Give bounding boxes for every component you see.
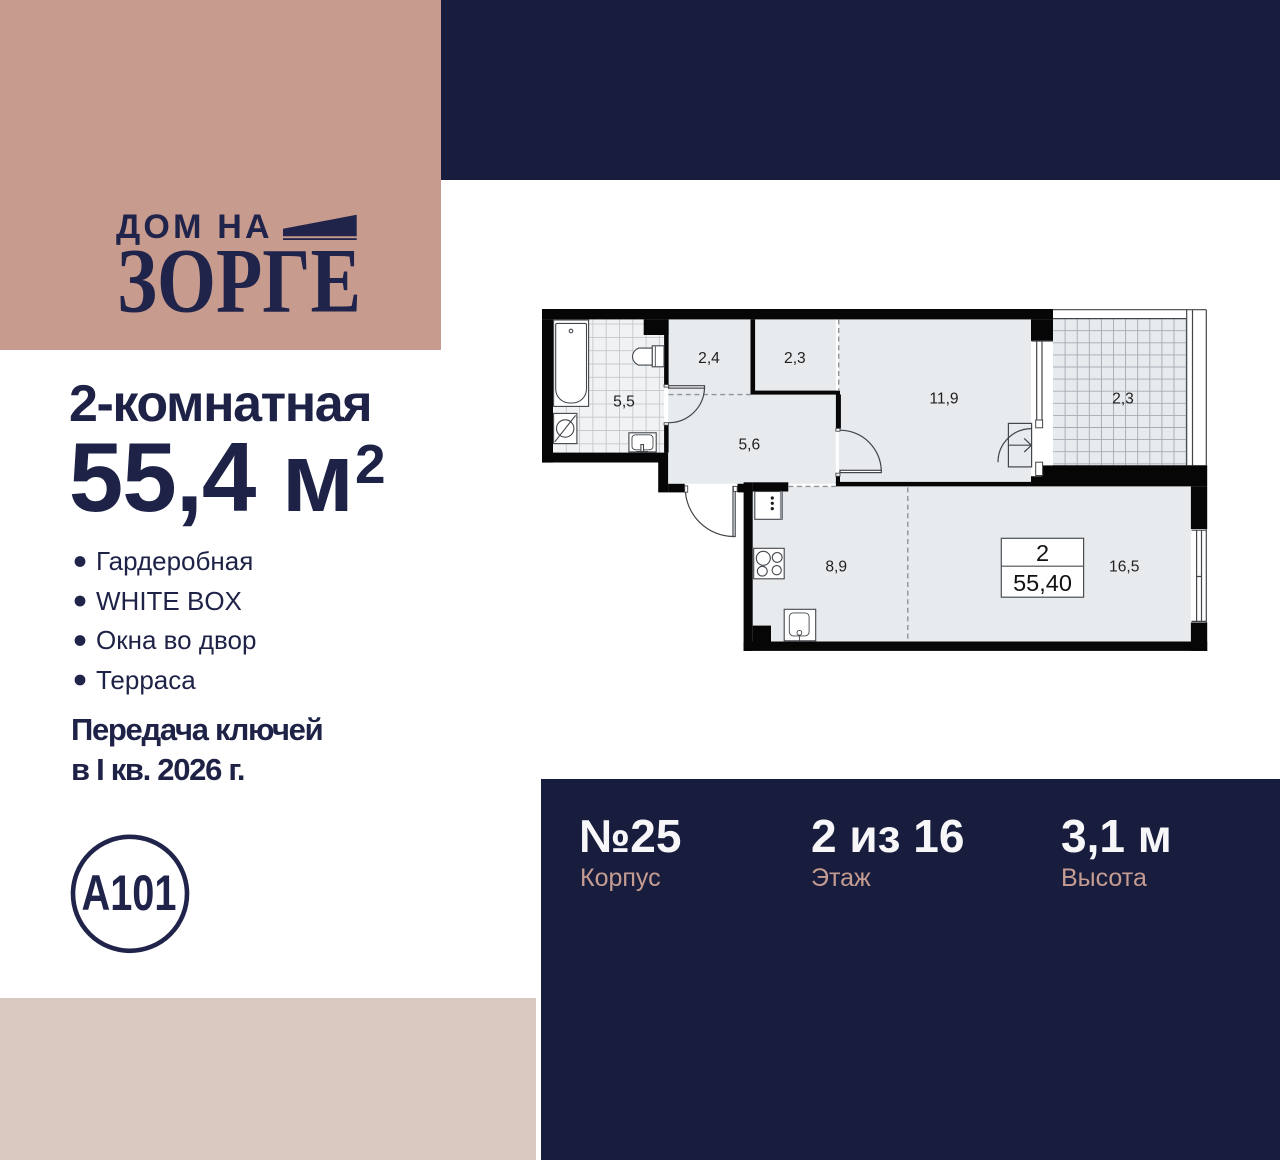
svg-text:2,4: 2,4	[698, 350, 720, 367]
svg-text:5,6: 5,6	[738, 436, 760, 453]
svg-text:2,3: 2,3	[784, 350, 806, 367]
svg-text:8,9: 8,9	[825, 558, 847, 575]
svg-text:11,9: 11,9	[929, 391, 958, 408]
svg-text:5,5: 5,5	[613, 393, 635, 410]
svg-text:ЗОРГЕ: ЗОРГЕ	[117, 243, 361, 325]
svg-text:2: 2	[1036, 540, 1049, 566]
svg-text:16,5: 16,5	[1109, 558, 1140, 575]
svg-text:55,40: 55,40	[1013, 570, 1072, 596]
svg-text:2,3: 2,3	[1112, 391, 1134, 408]
svg-text:A101: A101	[82, 865, 177, 921]
